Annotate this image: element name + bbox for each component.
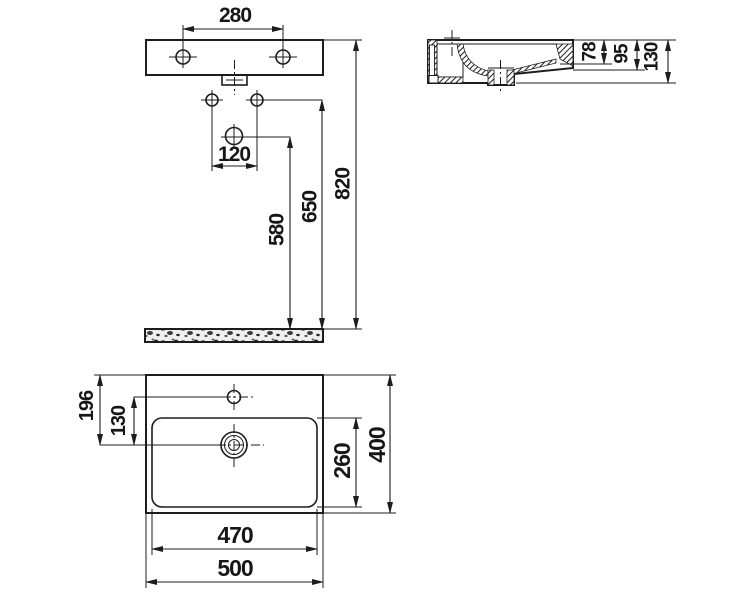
pipe-wall-hatch bbox=[488, 70, 494, 85]
mounting-slot bbox=[430, 45, 435, 76]
dim-label-120: 120 bbox=[218, 143, 250, 166]
cavity-bottom-hatch bbox=[437, 77, 463, 83]
dim-label-260: 260 bbox=[329, 443, 355, 479]
dim-label-78: 78 bbox=[580, 42, 601, 62]
dim-label-500: 500 bbox=[217, 555, 253, 581]
dim-bowl-depth: 78 bbox=[580, 40, 605, 64]
dim-label-280: 280 bbox=[219, 4, 251, 27]
bottom-notch bbox=[429, 76, 438, 84]
dim-label-400: 400 bbox=[364, 427, 390, 463]
dim-label-820: 820 bbox=[332, 168, 355, 200]
dim-label-196: 196 bbox=[76, 390, 98, 421]
technical-drawing-sheet: 280 120 bbox=[0, 0, 750, 600]
dim-label-130-plan: 130 bbox=[108, 405, 130, 436]
dim-label-650: 650 bbox=[299, 191, 322, 223]
dim-label-470: 470 bbox=[217, 522, 253, 548]
floor-hatch-strip bbox=[145, 329, 323, 342]
sheet-background bbox=[0, 0, 750, 600]
basin-technical-drawing: 280 120 bbox=[0, 0, 750, 600]
dim-label-130-side: 130 bbox=[642, 42, 663, 71]
dim-label-95: 95 bbox=[612, 43, 633, 64]
pipe-wall-hatch bbox=[507, 70, 514, 85]
dim-label-580: 580 bbox=[266, 214, 289, 246]
